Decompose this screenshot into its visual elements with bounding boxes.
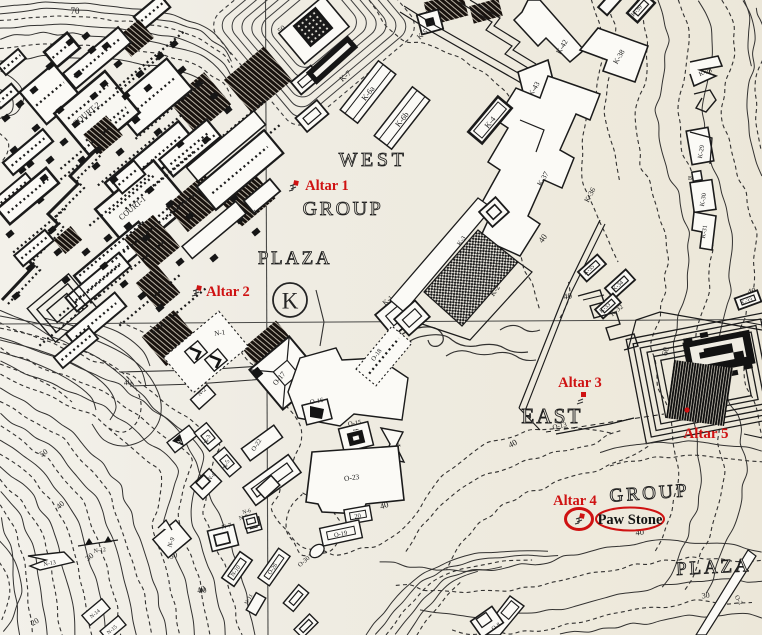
svg-text:WEST: WEST <box>339 149 408 171</box>
svg-text:GROUP: GROUP <box>303 198 384 220</box>
svg-text:PLAZA: PLAZA <box>258 248 332 269</box>
svg-text:30: 30 <box>701 591 710 601</box>
svg-text:20: 20 <box>354 513 362 521</box>
svg-text:70: 70 <box>71 6 81 16</box>
svg-text:N-1: N-1 <box>214 328 226 338</box>
svg-text:Altar 4: Altar 4 <box>553 493 597 509</box>
svg-text:Paw Stone: Paw Stone <box>598 512 663 528</box>
svg-text:Altar 3: Altar 3 <box>558 375 602 391</box>
svg-text:40: 40 <box>123 378 132 388</box>
svg-text:EAST: EAST <box>521 404 582 428</box>
svg-text:Altar 1: Altar 1 <box>305 178 349 194</box>
svg-text:K: K <box>282 289 299 314</box>
svg-text:Altar 5: Altar 5 <box>683 426 728 442</box>
svg-text:B: B <box>688 176 692 182</box>
svg-text:40: 40 <box>635 527 644 538</box>
svg-text:Altar 2: Altar 2 <box>206 284 250 300</box>
svg-text:PLAZA: PLAZA <box>676 555 752 580</box>
